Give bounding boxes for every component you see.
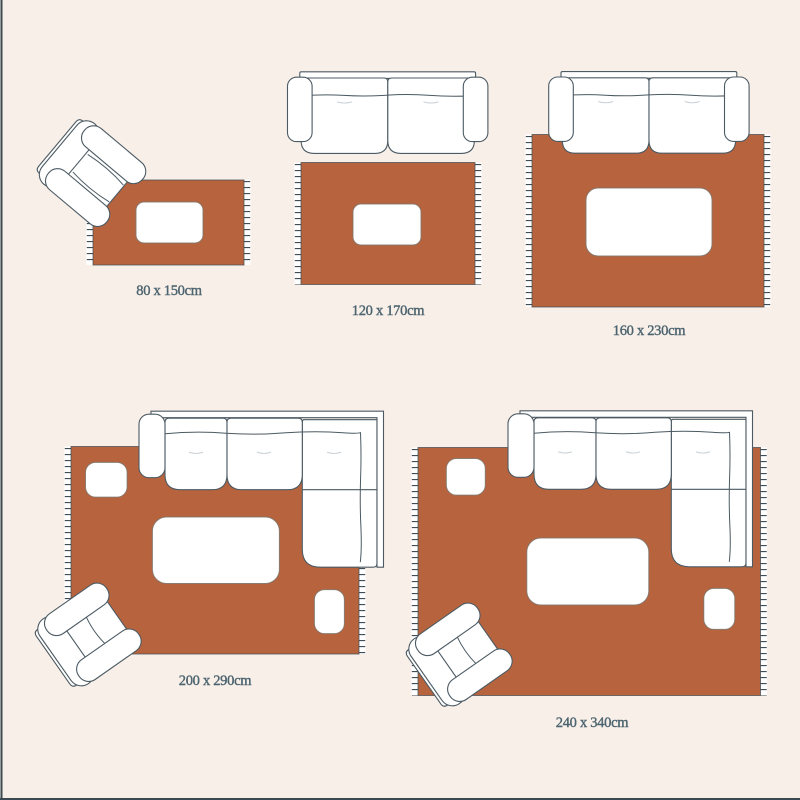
svg-text:120 x 170cm: 120 x 170cm xyxy=(352,303,425,319)
svg-text:200 x 290cm: 200 x 290cm xyxy=(179,673,252,689)
svg-text:160 x 230cm: 160 x 230cm xyxy=(613,323,686,339)
svg-text:80 x 150cm: 80 x 150cm xyxy=(136,283,202,299)
svg-text:240 x 340cm: 240 x 340cm xyxy=(556,715,629,731)
